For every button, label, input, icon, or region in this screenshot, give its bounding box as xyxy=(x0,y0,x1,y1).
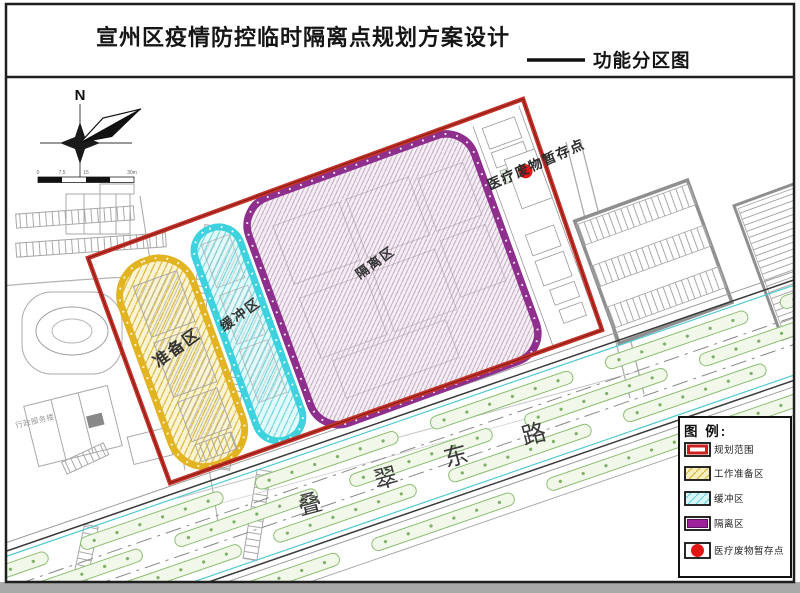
scale-tick: 0 xyxy=(37,170,40,176)
scale-tick: 15 xyxy=(83,170,89,176)
legend-label: 医疗废物暂存点 xyxy=(714,545,784,557)
legend-swatch-medical-waste-dot xyxy=(691,544,704,557)
legend-label: 工作准备区 xyxy=(714,468,764,480)
legend: 图 例: 规划范围 工作准备区 缓冲区 隔离区 医疗废物暂存点 xyxy=(679,417,791,577)
legend-swatch-buffer-hatch xyxy=(686,493,709,504)
small-building xyxy=(86,413,104,429)
parking-row xyxy=(62,443,109,474)
compass-arrow-light xyxy=(80,109,141,143)
scale-bar: 0 7.5 15 30m xyxy=(37,170,137,183)
site-plan-map: 行政服务楼 xyxy=(0,0,800,593)
legend-swatch-preparation-hatch xyxy=(686,468,709,479)
site-plan-page: 行政服务楼 xyxy=(0,0,800,593)
parking-row xyxy=(16,206,135,228)
legend-label: 规划范围 xyxy=(714,444,754,456)
scale-tick: 7.5 xyxy=(59,170,66,176)
photo-bottom-band xyxy=(0,582,800,593)
drawing-title: 宣州区疫情防控临时隔离点规划方案设计 xyxy=(96,25,510,50)
west-building xyxy=(100,184,134,194)
map-type-label: 功能分区图 xyxy=(593,50,691,71)
legend-label: 隔离区 xyxy=(714,518,744,530)
legend-label: 缓冲区 xyxy=(714,493,744,505)
pond-inner xyxy=(52,319,92,343)
compass-rose: N xyxy=(40,87,141,178)
legend-title: 图 例: xyxy=(684,423,727,439)
parking-lot-northeast xyxy=(575,141,800,392)
north-label: N xyxy=(75,87,86,104)
legend-swatch-isolation-inner xyxy=(688,520,708,528)
admin-building-label: 行政服务楼 xyxy=(14,411,55,430)
scale-tick: 30m xyxy=(127,170,137,176)
pond xyxy=(36,307,108,355)
